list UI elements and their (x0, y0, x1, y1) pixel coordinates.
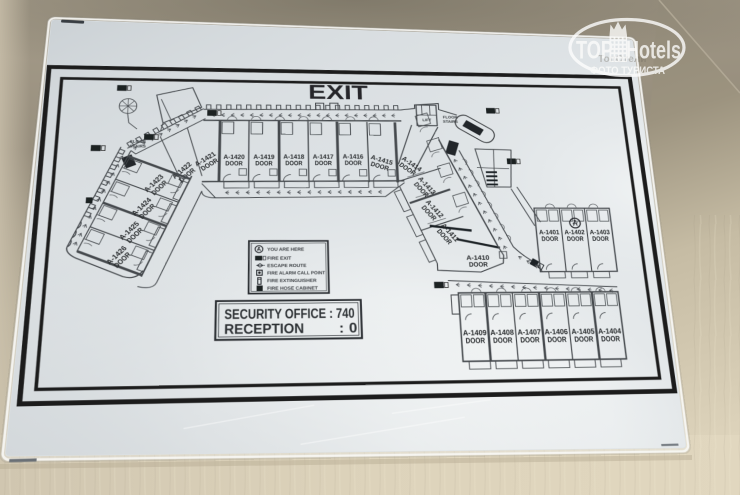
svg-text:Hotels: Hotels (626, 37, 681, 65)
svg-text:TOP: TOP (576, 37, 613, 65)
svg-text:ФОТО ТУРИСТА: ФОТО ТУРИСТА (590, 65, 665, 77)
